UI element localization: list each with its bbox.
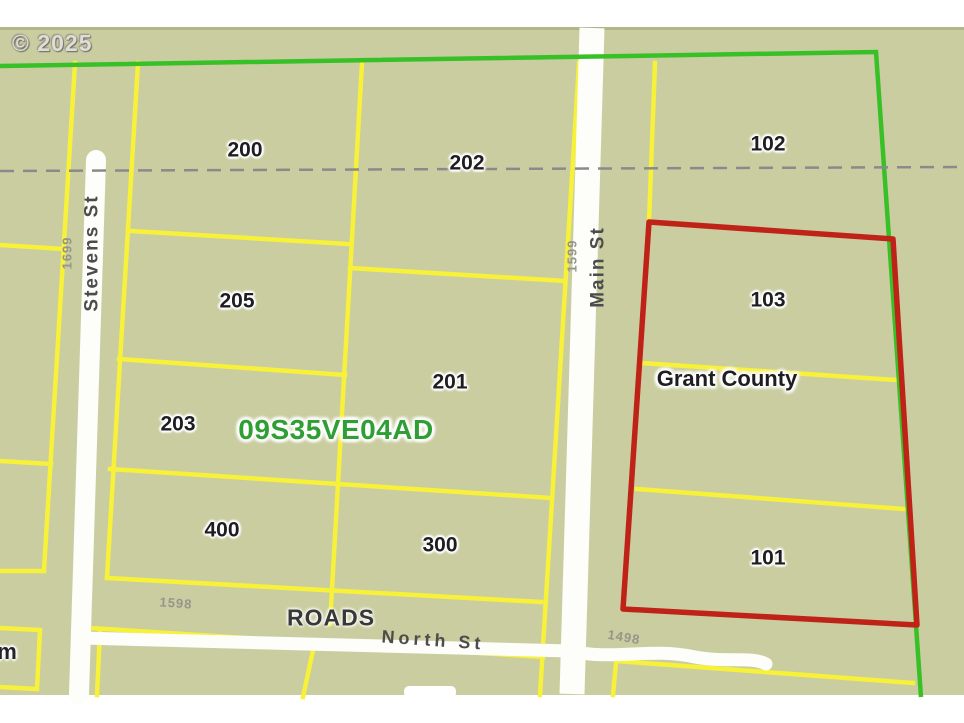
county-label: Grant County <box>657 368 798 390</box>
parcel-line-left-stub-2 <box>0 461 51 464</box>
parcel-label-201: 201 <box>432 372 467 393</box>
parcel-label-202: 202 <box>449 153 484 174</box>
clipped-label-blob <box>404 686 456 698</box>
plat-map: 200 202 102 205 201 103 203 400 300 101 … <box>0 0 964 723</box>
parcel-label-400: 400 <box>204 520 239 541</box>
address-number-1699: 1699 <box>61 237 74 270</box>
parcel-label-203: 203 <box>160 414 195 435</box>
parcel-label-101: 101 <box>750 548 785 569</box>
address-number-1598: 1598 <box>159 595 193 610</box>
parcel-label-103: 103 <box>750 290 785 311</box>
plat-map-canvas <box>0 0 964 723</box>
parcel-label-205: 205 <box>219 291 254 312</box>
edge-text-fragment: m <box>0 641 17 663</box>
street-label-stevens-st: Stevens St <box>83 194 102 311</box>
parcel-label-102: 102 <box>750 134 785 155</box>
street-label-main-st: Main St <box>589 226 608 308</box>
parcel-line-v-below-north-3 <box>613 663 616 695</box>
roads-layer-label: ROADS <box>287 607 375 630</box>
parcel-label-200: 200 <box>227 140 262 161</box>
parcel-label-300: 300 <box>422 535 457 556</box>
address-number-1599: 1599 <box>566 240 579 273</box>
copyright-watermark: © 2025 <box>12 30 93 57</box>
plat-id-label: 09S35VE04AD <box>238 416 433 444</box>
